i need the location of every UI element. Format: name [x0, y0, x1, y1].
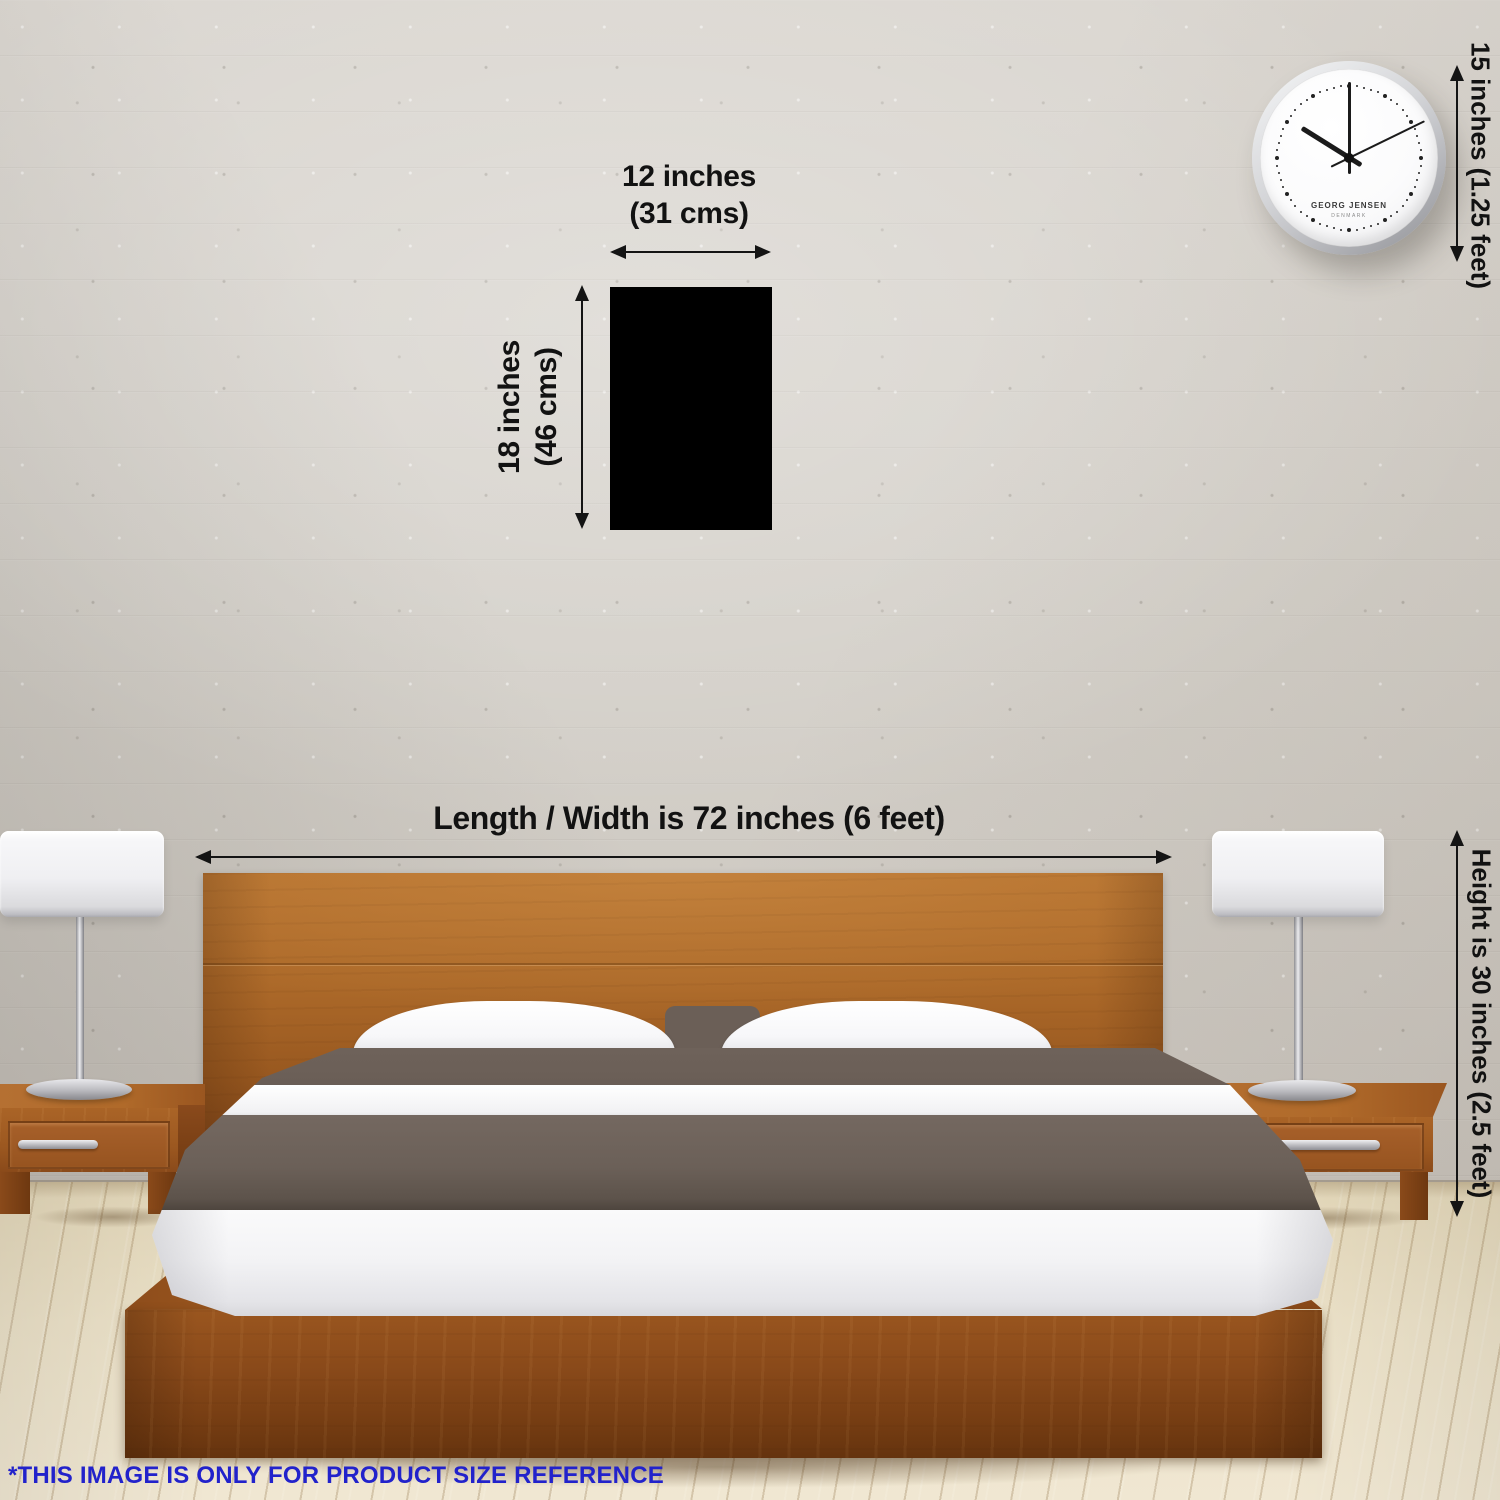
clock-dial-dot	[1285, 192, 1289, 196]
clock-dial-dot	[1363, 87, 1365, 89]
clock-center-cap	[1344, 153, 1354, 163]
product-width-line2: (31 cms)	[539, 195, 839, 232]
product-height-line1: 18 inches	[491, 277, 528, 537]
clock-dial-dot	[1319, 223, 1321, 225]
lamp-right-stem	[1294, 915, 1303, 1085]
wall-clock: GEORG JENSEN DENMARK	[1252, 61, 1446, 255]
nightstand-right-leg	[1400, 1172, 1428, 1220]
clock-dial-dot	[1280, 135, 1282, 137]
clock-height-label: 15 inches (1.25 feet)	[1465, 36, 1496, 296]
clock-dial-dot	[1414, 186, 1416, 188]
bed-platform-front	[125, 1310, 1322, 1458]
lamp-left-stem	[76, 915, 84, 1087]
clock-dial-dot	[1280, 179, 1282, 181]
clock-dial-dot	[1347, 228, 1351, 232]
clock-dial-dot	[1370, 225, 1372, 227]
clock-brand-text: GEORG JENSEN	[1260, 201, 1438, 210]
clock-dial-dot	[1416, 179, 1418, 181]
headboard-seam	[203, 963, 1163, 965]
sheet-stripe	[145, 1085, 1340, 1115]
clock-dial-dot	[1294, 109, 1296, 111]
product-width-line1: 12 inches	[539, 158, 839, 195]
clock-dial-dot	[1276, 149, 1278, 151]
product-size-swatch	[610, 287, 772, 530]
clock-dial-dot	[1409, 192, 1413, 196]
mattress-bedding	[145, 1040, 1340, 1318]
bed-height-label: Height is 30 inches (2.5 feet)	[1466, 824, 1497, 1224]
clock-dial-dot	[1418, 142, 1420, 144]
clock-dial-dot	[1333, 87, 1335, 89]
clock-dial-dot	[1418, 172, 1420, 174]
lamp-left-shade	[0, 831, 164, 917]
clock-dial-dot	[1390, 99, 1392, 101]
clock-dial-dot	[1319, 91, 1321, 93]
clock-dial-dot	[1282, 186, 1284, 188]
clock-dial-dot	[1276, 165, 1278, 167]
clock-dial-dot	[1420, 149, 1422, 151]
clock-dial-dot	[1383, 94, 1387, 98]
lamp-left-base	[26, 1079, 132, 1100]
clock-dial-dot	[1377, 91, 1379, 93]
lamp-right-shade	[1212, 831, 1384, 917]
clock-dial-dot	[1311, 94, 1315, 98]
product-width-label: 12 inches (31 cms)	[539, 158, 839, 232]
bed-width-arrow	[197, 856, 1170, 858]
product-height-line2: (46 cms)	[528, 277, 565, 537]
clock-dial-dot	[1278, 172, 1280, 174]
nightstand-left-handle	[18, 1140, 98, 1149]
bed-height-arrow	[1456, 832, 1458, 1215]
product-size-reference-image: 12 inches (31 cms) 18 inches (46 cms) GE…	[0, 0, 1500, 1500]
product-width-arrow	[612, 251, 769, 253]
size-reference-footnote: *THIS IMAGE IS ONLY FOR PRODUCT SIZE REF…	[8, 1462, 664, 1490]
clock-dial-dot	[1285, 120, 1289, 124]
clock-dial-dot	[1326, 89, 1328, 91]
clock-dial-dot	[1406, 115, 1408, 117]
clock-brand-subtext: DENMARK	[1260, 213, 1438, 219]
clock-dial-dot	[1419, 156, 1423, 160]
clock-dial-dot	[1356, 229, 1358, 231]
blanket-band	[145, 1115, 1340, 1210]
clock-dial-dot	[1275, 156, 1279, 160]
clock-dial-dot	[1396, 103, 1398, 105]
clock-dial-dot	[1363, 227, 1365, 229]
clock-dial-dot	[1416, 135, 1418, 137]
clock-dial-dot	[1326, 225, 1328, 227]
clock-dial-dot	[1409, 120, 1413, 124]
lamp-right-base	[1248, 1080, 1356, 1101]
clock-dial-dot	[1333, 227, 1335, 229]
clock-dial-dot	[1282, 128, 1284, 130]
clock-dial-dot	[1340, 85, 1342, 87]
clock-dial-dot	[1420, 165, 1422, 167]
clock-dial-dot	[1370, 89, 1372, 91]
clock-dial-dot	[1340, 229, 1342, 231]
product-height-label: 18 inches (46 cms)	[491, 277, 565, 537]
clock-dial-dot	[1278, 142, 1280, 144]
clock-dial-dot	[1414, 128, 1416, 130]
mattress-base	[145, 1210, 1340, 1318]
clock-dial-dot	[1356, 85, 1358, 87]
clock-dial-dot	[1306, 99, 1308, 101]
product-height-arrow	[581, 287, 583, 527]
clock-dial-dot	[1402, 109, 1404, 111]
clock-dial-dot	[1377, 223, 1379, 225]
bed-width-label: Length / Width is 72 inches (6 feet)	[339, 800, 1039, 837]
clock-dial-dot	[1300, 103, 1302, 105]
clock-dial-dot	[1290, 115, 1292, 117]
clock-height-arrow	[1456, 67, 1458, 260]
